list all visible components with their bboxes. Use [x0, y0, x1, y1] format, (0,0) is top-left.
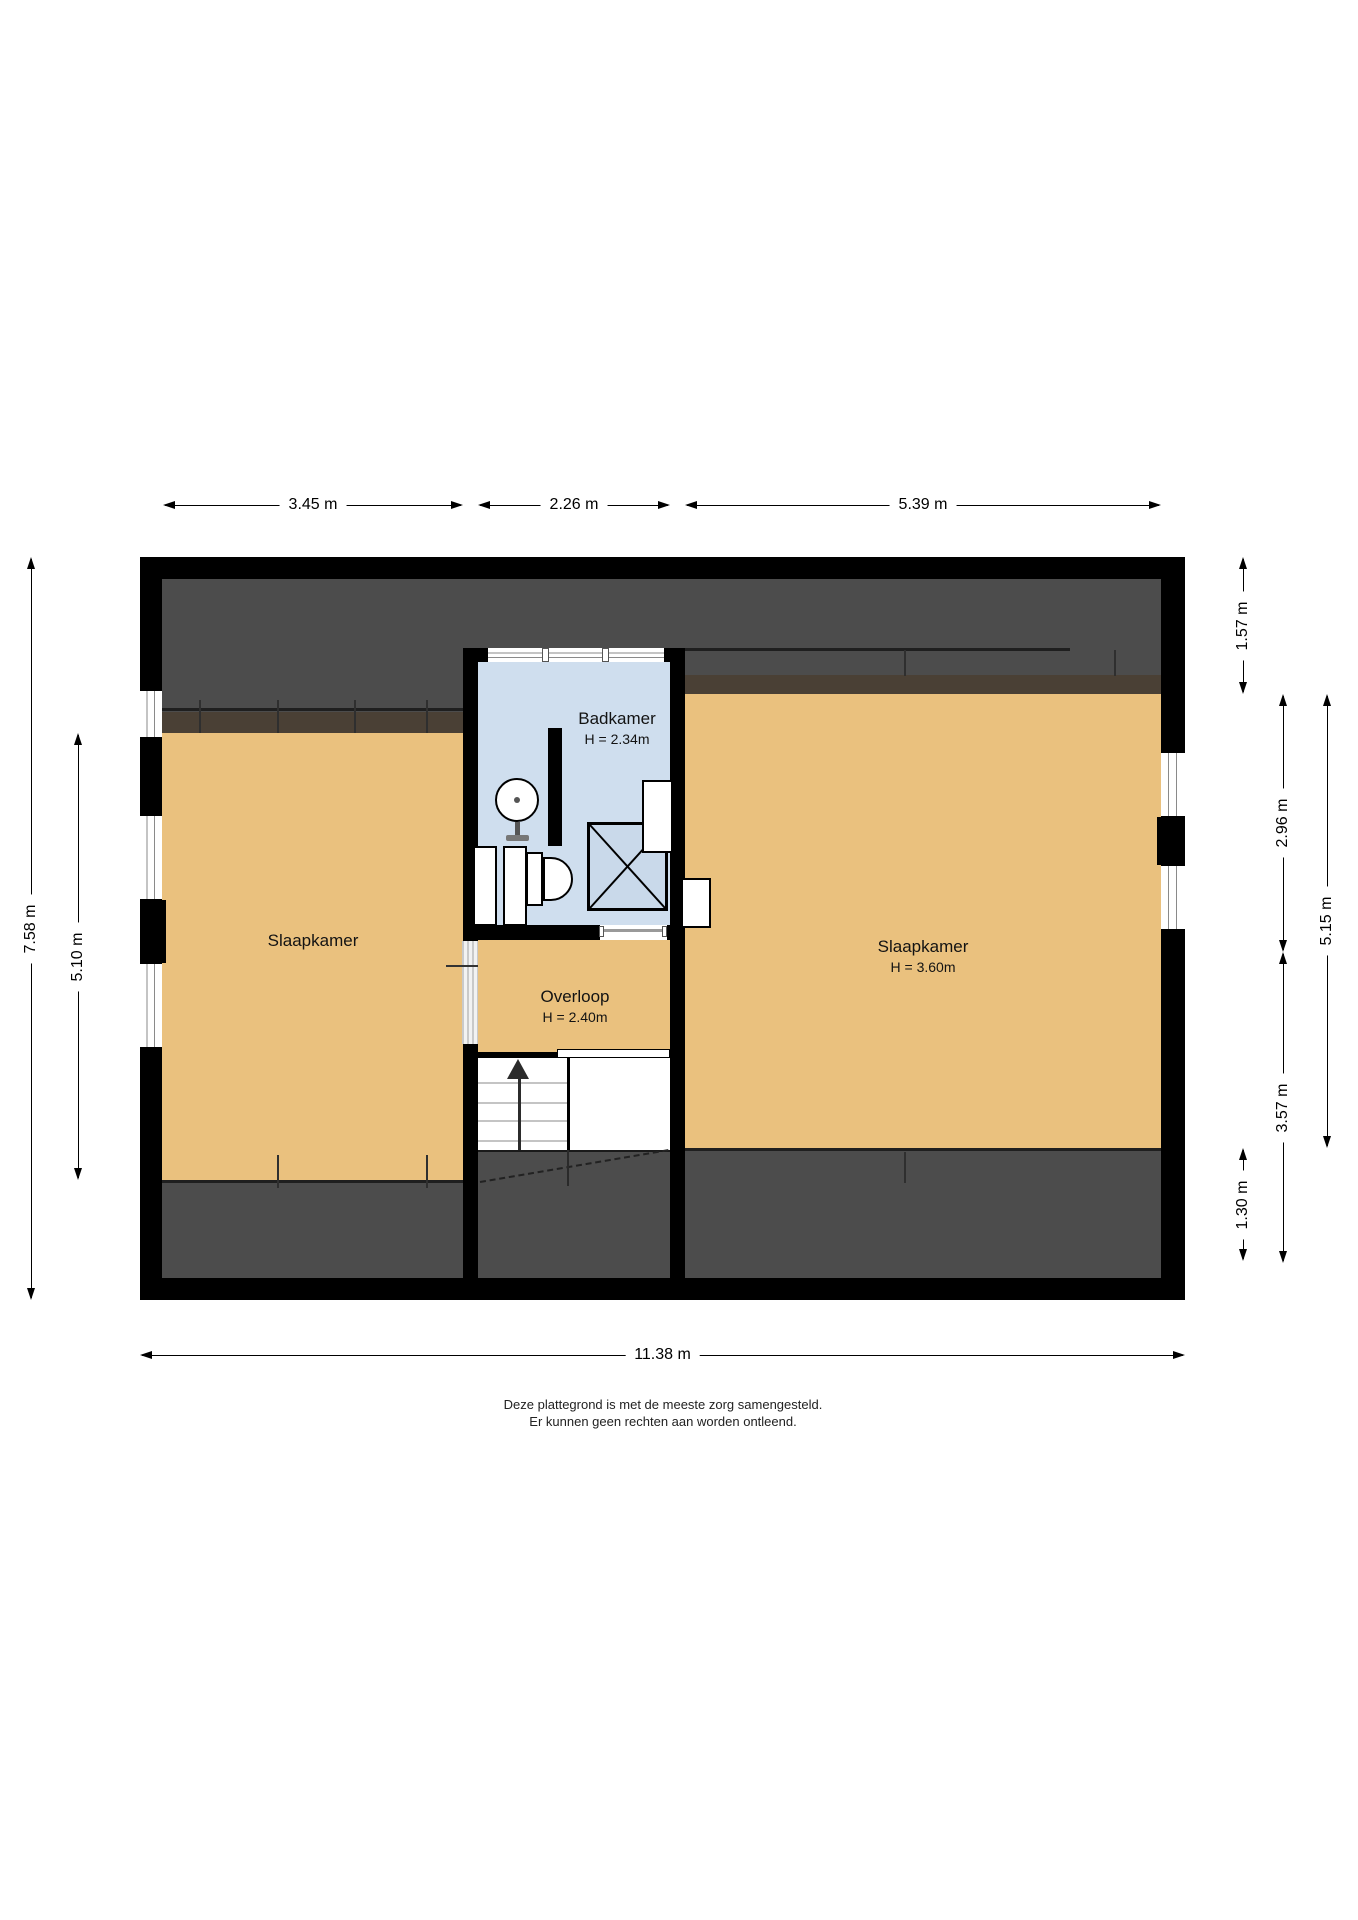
window — [140, 690, 162, 738]
window — [1161, 865, 1185, 930]
dim-bottom: 11.38 m — [140, 1346, 1185, 1364]
stairs-arrow-shaft — [518, 1079, 521, 1150]
stairs-up-arrow-icon — [507, 1059, 529, 1079]
bathroom-cabinet — [473, 846, 497, 926]
knee-tick — [277, 1155, 279, 1188]
knee-tick — [354, 700, 356, 733]
caption-line-1: Deze plattegrond is met de meeste zorg s… — [263, 1396, 1063, 1413]
bedroom-right-floor — [685, 694, 1161, 1148]
dim-label: 3.45 m — [280, 496, 347, 514]
dim-top-3: 5.39 m — [685, 496, 1161, 514]
knee-tick — [426, 700, 428, 733]
window-pier — [1157, 817, 1185, 865]
room-height: H = 2.34m — [527, 730, 707, 748]
stair-tread — [478, 1140, 568, 1142]
roof-area-bottom-left — [162, 1183, 463, 1278]
stair-top-step — [557, 1049, 670, 1058]
knee-tick — [904, 650, 906, 676]
dim-right-5: 5.15 m — [1318, 694, 1336, 1148]
caption: Deze plattegrond is met de meeste zorg s… — [263, 1396, 1063, 1430]
sink-base — [506, 835, 529, 841]
roof-area-under-stairs — [478, 1150, 670, 1278]
dim-label: 2.26 m — [541, 496, 608, 514]
doorway-right-bedroom — [683, 878, 711, 928]
window — [487, 648, 665, 662]
dim-right-1: 1.57 m — [1234, 557, 1252, 694]
knee-tick — [277, 700, 279, 733]
stair-tread — [478, 1082, 568, 1084]
room-label-badkamer: Badkamer H = 2.34m — [527, 708, 707, 748]
knee-tick — [426, 1155, 428, 1188]
knee-line-right — [685, 648, 1070, 651]
window — [1161, 752, 1185, 817]
dim-top-1: 3.45 m — [163, 496, 463, 514]
dim-label: 1.30 m — [1234, 1170, 1252, 1239]
stair-tread — [478, 1120, 568, 1122]
knee-strip-top-left — [162, 712, 463, 733]
room-label-slaapkamer-left: Slaapkamer — [213, 930, 413, 952]
knee-tick — [199, 700, 201, 733]
stair-divider-extension — [567, 1150, 569, 1186]
roof-area-top-middle — [463, 579, 685, 648]
dim-right-3: 3.57 m — [1274, 952, 1292, 1263]
room-label-overloop: Overloop H = 2.40m — [485, 986, 665, 1026]
toilet-icon — [526, 852, 543, 906]
stair-boundary-line — [478, 1150, 670, 1152]
room-height: H = 3.60m — [823, 958, 1023, 976]
door-swing-line — [446, 965, 482, 967]
wall — [670, 928, 685, 1278]
dim-left-outer: 7.58 m — [22, 557, 40, 1300]
floor-plan: Badkamer H = 2.34m Overloop H = 2.40m Sl… — [0, 0, 1358, 1920]
window-mullion — [602, 648, 609, 662]
dim-label: 2.96 m — [1274, 789, 1292, 858]
knee-line-left — [162, 708, 463, 711]
window-mullion — [542, 648, 549, 662]
dim-label: 5.39 m — [890, 496, 957, 514]
stair-divider-wall — [567, 1058, 570, 1150]
dim-label: 5.15 m — [1318, 887, 1336, 956]
shower-door-handle — [671, 810, 680, 813]
dim-left-inner: 5.10 m — [69, 733, 87, 1180]
room-label-slaapkamer-right: Slaapkamer H = 3.60m — [823, 936, 1023, 976]
roof-area-top-left — [162, 579, 463, 712]
bedroom-left-floor — [162, 733, 463, 1180]
dim-label: 1.57 m — [1234, 591, 1252, 660]
shower-door — [642, 780, 673, 853]
knee-tick — [1114, 650, 1116, 676]
room-name: Slaapkamer — [213, 930, 413, 952]
door-left-bedroom — [462, 941, 478, 1044]
sink-pedestal — [515, 822, 520, 836]
window-pier — [140, 900, 166, 963]
bathroom-cabinet — [503, 846, 527, 926]
knee-strip-top-right — [685, 675, 1161, 694]
room-name: Overloop — [485, 986, 665, 1008]
wall — [463, 1044, 478, 1278]
window — [140, 815, 162, 900]
dim-label: 11.38 m — [625, 1346, 700, 1364]
roof-area-top-right — [685, 579, 1161, 675]
roof-area-bottom-right — [685, 1151, 1161, 1278]
room-height: H = 2.40m — [485, 1008, 665, 1026]
bathroom-door-opening — [600, 925, 667, 940]
dim-label: 5.10 m — [69, 922, 87, 991]
dim-right-2: 2.96 m — [1274, 694, 1292, 952]
room-name: Slaapkamer — [823, 936, 1023, 958]
window — [140, 963, 162, 1048]
dim-top-2: 2.26 m — [478, 496, 670, 514]
stair-tread — [478, 1102, 568, 1104]
dim-right-4: 1.30 m — [1234, 1148, 1252, 1261]
room-name: Badkamer — [527, 708, 707, 730]
wall — [463, 925, 600, 940]
dim-label: 7.58 m — [22, 894, 40, 963]
caption-line-2: Er kunnen geen rechten aan worden ontlee… — [263, 1413, 1063, 1430]
dim-label: 3.57 m — [1274, 1073, 1292, 1142]
knee-tick — [904, 1152, 906, 1183]
bathroom-door-leaf — [600, 929, 667, 932]
door-jamb — [599, 926, 604, 937]
sink-drain — [514, 797, 520, 803]
